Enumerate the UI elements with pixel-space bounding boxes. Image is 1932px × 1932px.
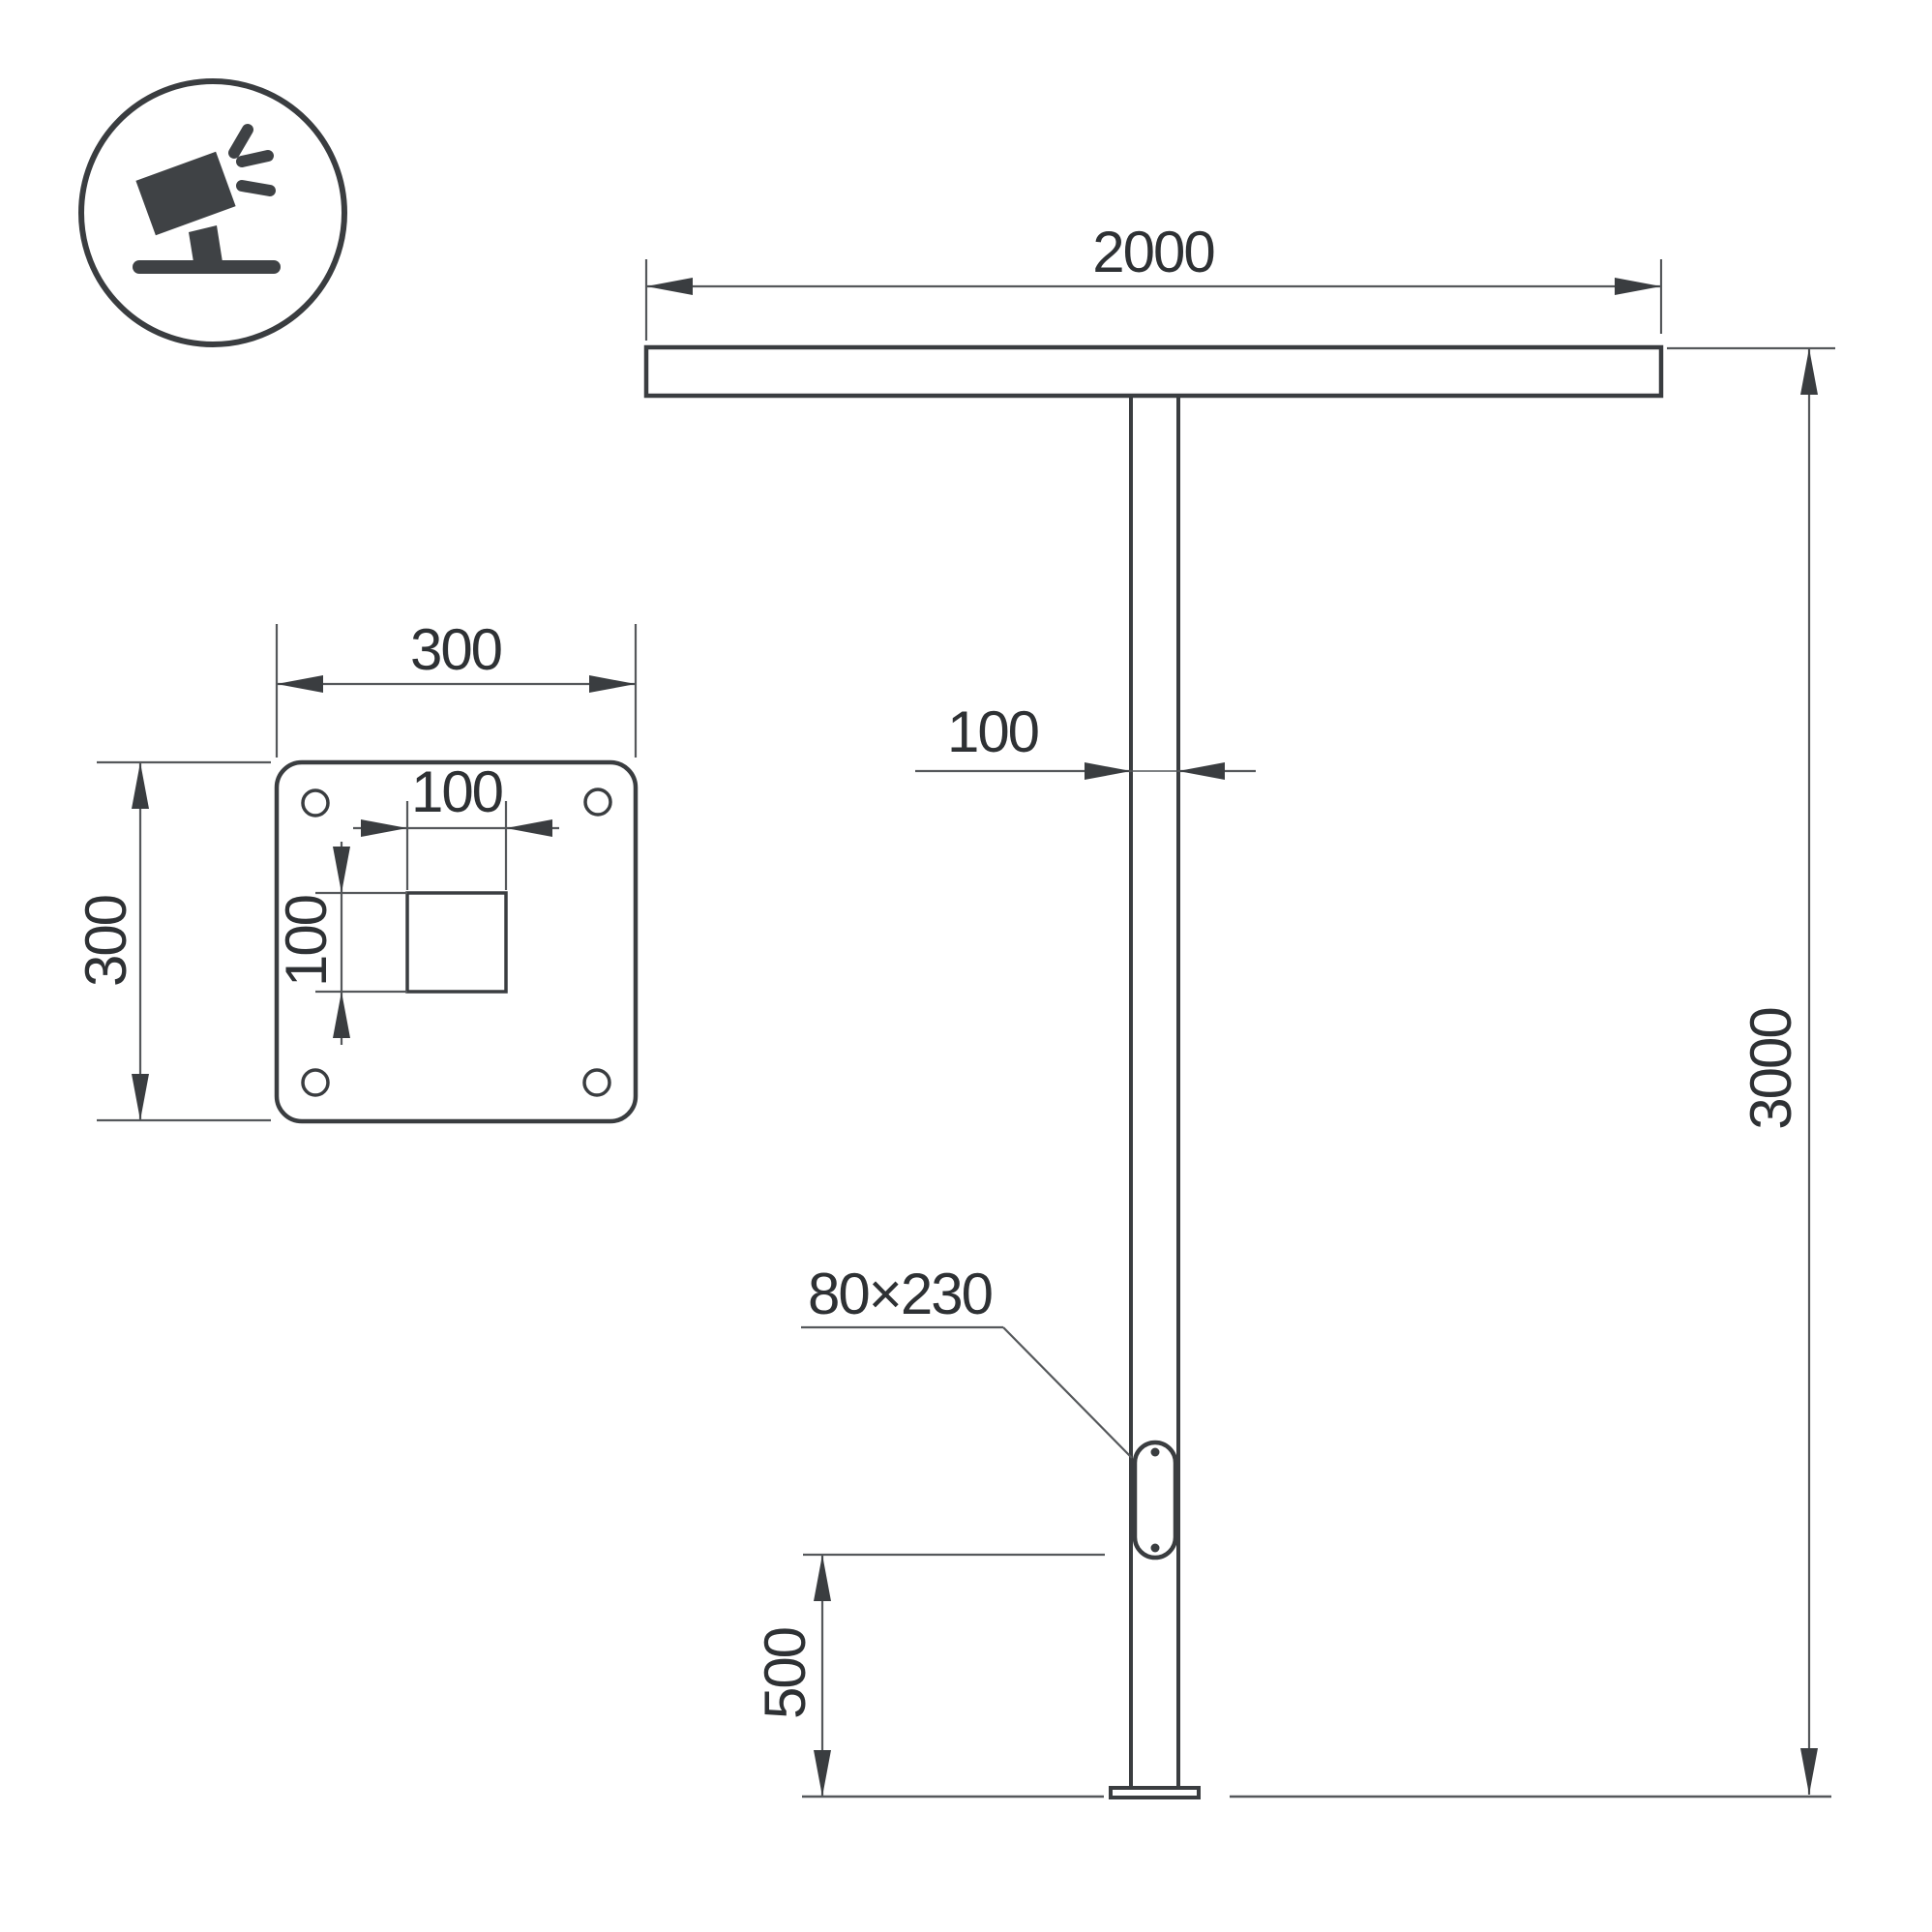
label-service-door-size: 80×230 <box>808 1265 992 1323</box>
door-screw-bottom <box>1151 1544 1160 1553</box>
service-door <box>1135 1442 1175 1558</box>
floodlight-icon <box>81 81 344 344</box>
leader-service-door <box>801 1327 1132 1458</box>
center-square-hole <box>407 893 506 992</box>
label-plate-height: 300 <box>77 896 135 987</box>
icon-light-rays <box>234 130 270 191</box>
label-crossbar-width: 2000 <box>1092 223 1213 282</box>
pole-shaft <box>1131 396 1178 1788</box>
label-pole-height: 3000 <box>1742 1008 1800 1129</box>
label-square-height: 100 <box>278 896 336 987</box>
label-pole-width: 100 <box>947 703 1038 761</box>
icon-lamp-base <box>133 260 281 274</box>
door-screw-top <box>1151 1448 1160 1457</box>
technical-drawing-page: 2000 3000 100 80×230 500 300 300 100 100 <box>0 0 1932 1932</box>
dim-door-height <box>803 1555 1105 1797</box>
label-plate-width: 300 <box>410 621 501 679</box>
icon-lamp-body <box>135 152 235 235</box>
label-square-width: 100 <box>411 763 502 821</box>
base-flange <box>1111 1788 1199 1798</box>
crossbar <box>646 347 1661 396</box>
dim-pole-width <box>915 762 1256 780</box>
icon-lamp-neck <box>189 225 223 262</box>
label-door-bottom-height: 500 <box>757 1628 815 1719</box>
